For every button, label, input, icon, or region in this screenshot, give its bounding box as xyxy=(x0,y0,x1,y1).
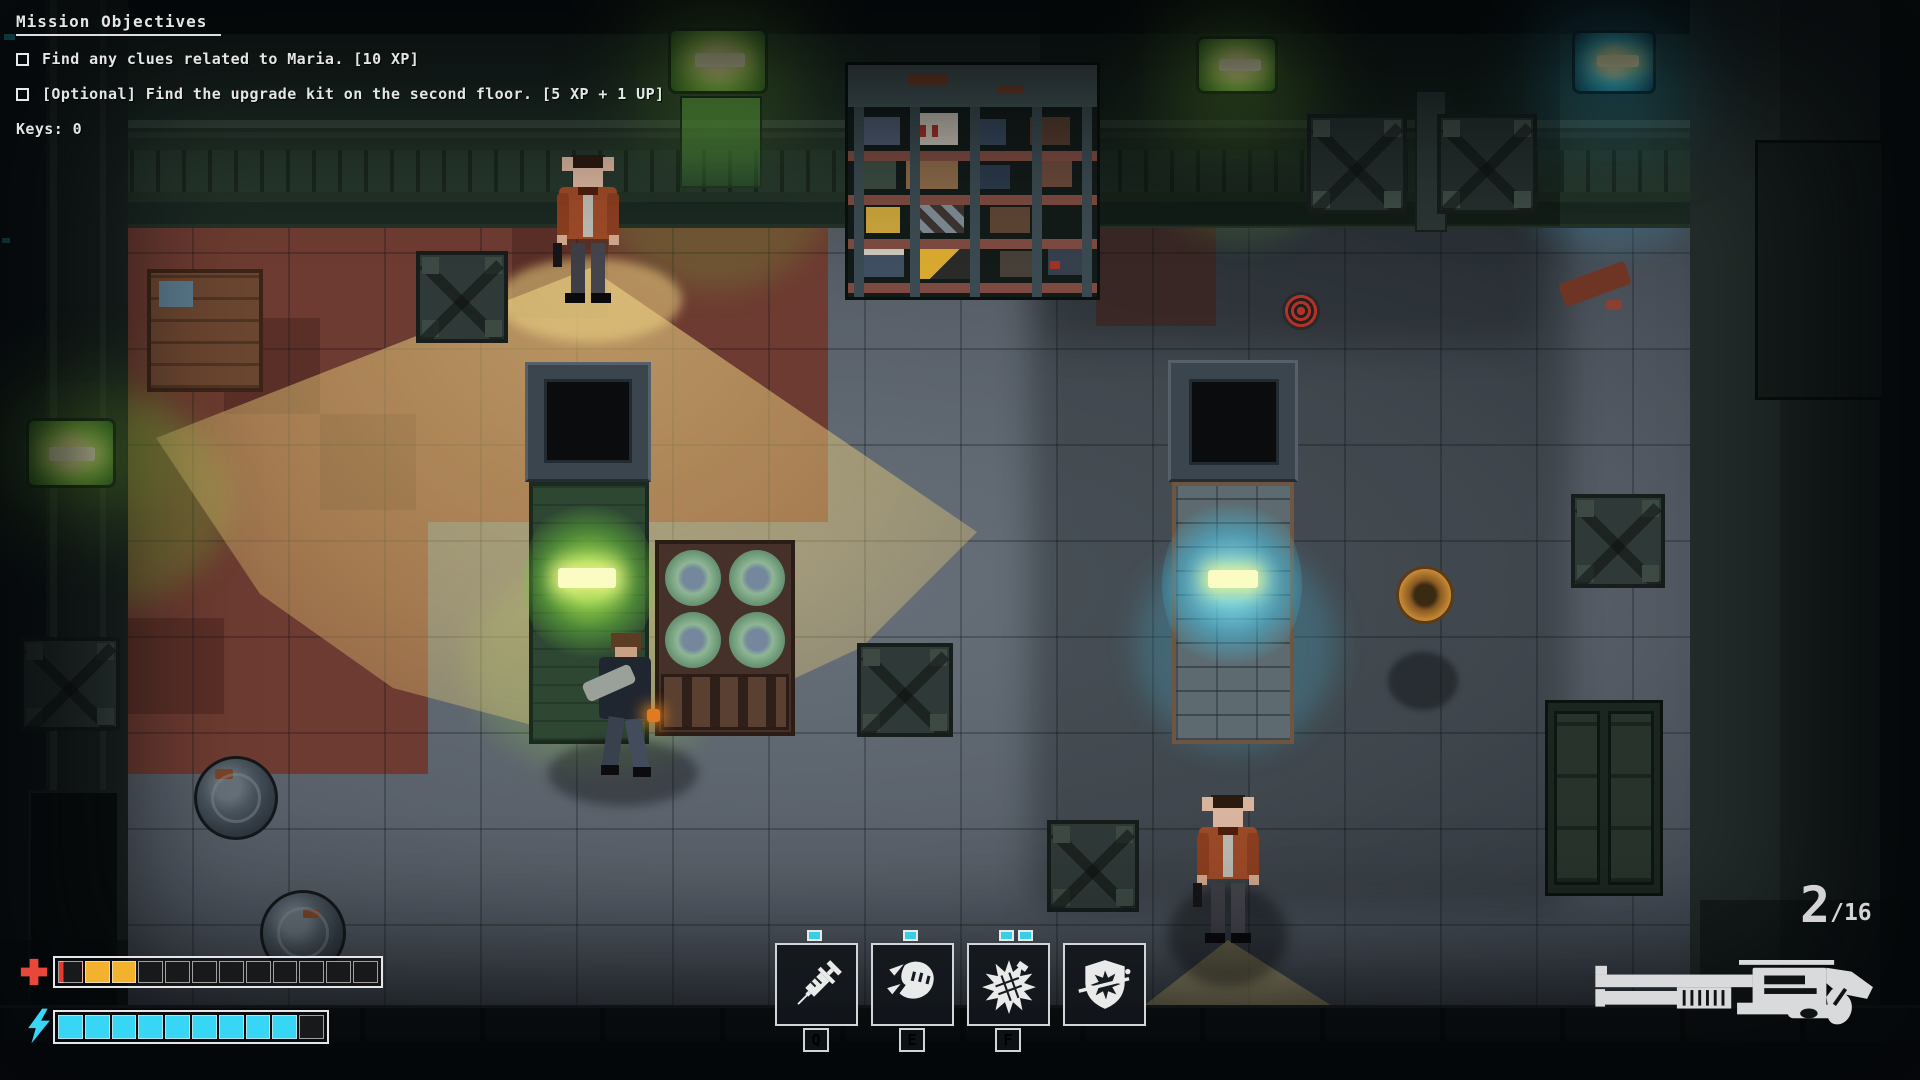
green-lamp xyxy=(668,28,768,94)
enemy-shoe xyxy=(565,293,585,303)
wall-panel xyxy=(1755,140,1885,400)
enemy-hair xyxy=(1243,797,1254,811)
ability-slot-grenade[interactable]: F xyxy=(967,943,1050,1026)
enemy-guard xyxy=(1197,795,1259,950)
player-character xyxy=(585,633,667,781)
seg-empty xyxy=(219,961,244,983)
enemy-hand xyxy=(609,235,619,245)
player-shoe xyxy=(601,765,619,775)
fist-icon xyxy=(884,956,942,1014)
cyan-glint xyxy=(2,238,10,243)
objective-item: [Optional] Find the upgrade kit on the s… xyxy=(16,85,664,103)
health-cross-icon xyxy=(19,957,49,987)
energy-bar xyxy=(53,1010,329,1044)
canister xyxy=(665,612,721,668)
seg-empty xyxy=(246,961,271,983)
eseg-full xyxy=(219,1015,244,1039)
shotgun-icon xyxy=(1590,960,1888,1026)
eseg-full xyxy=(192,1015,217,1039)
gate-panel xyxy=(1554,711,1600,885)
ability-keybind: F xyxy=(995,1028,1021,1052)
metal-crate xyxy=(20,637,120,731)
enemy-guard xyxy=(557,155,619,310)
ability-keybind: Q xyxy=(803,1028,829,1052)
enemy-arm xyxy=(1247,833,1259,877)
canister-crate xyxy=(655,540,795,736)
enemy-leg xyxy=(1211,883,1225,935)
charge-pip xyxy=(1018,930,1033,941)
metal-crate xyxy=(1047,820,1139,912)
shelf-post xyxy=(1082,107,1092,297)
health-segments xyxy=(57,960,379,984)
seg-empty xyxy=(326,961,351,983)
enemy-pistol xyxy=(553,243,562,267)
enemy-arm xyxy=(1197,833,1209,877)
round-stool xyxy=(1396,566,1454,624)
seg-empty xyxy=(273,961,298,983)
gate-door xyxy=(1545,700,1663,896)
metal-crate xyxy=(416,251,508,343)
shelf-item xyxy=(980,165,1010,189)
keys-counter: Keys: 0 xyxy=(16,120,664,138)
floor-hole-shadow xyxy=(1388,652,1458,710)
enemy-shirt xyxy=(1223,835,1233,877)
enemy-collar xyxy=(1218,827,1238,835)
mission-objectives-panel: Mission Objectives Find any clues relate… xyxy=(16,12,664,138)
player-hand-glow xyxy=(647,709,660,722)
green-lamp xyxy=(1196,36,1278,94)
game-viewport[interactable]: Mission Objectives Find any clues relate… xyxy=(0,0,1920,1080)
enemy-leg xyxy=(591,243,605,295)
wooden-pallet xyxy=(147,269,263,392)
seg-empty xyxy=(192,961,217,983)
machine-kiosk xyxy=(1168,360,1298,482)
enemy-hair xyxy=(603,157,614,171)
seg-empty xyxy=(353,961,378,983)
metal-crate xyxy=(1571,494,1665,588)
objective-item: Find any clues related to Maria. [10 XP] xyxy=(16,50,664,68)
eseg-full xyxy=(58,1015,83,1039)
enemy-arm xyxy=(557,193,569,237)
ability-bar: Q E xyxy=(775,943,1146,1026)
enemy-shoe xyxy=(1231,933,1251,943)
eseg-full xyxy=(272,1015,297,1039)
seg-empty xyxy=(138,961,163,983)
ammo-reserve: /16 xyxy=(1830,902,1872,927)
ability-slot-fist[interactable]: E xyxy=(871,943,954,1026)
shelf-item xyxy=(918,247,974,279)
metal-crate xyxy=(857,643,953,737)
syringe-icon xyxy=(788,956,846,1014)
enemy-leg xyxy=(1231,883,1245,935)
eseg-full xyxy=(165,1015,190,1039)
shelf-post xyxy=(910,107,920,297)
metal-crate xyxy=(1437,114,1537,214)
keybind-label: E xyxy=(907,1031,916,1049)
eseg-full xyxy=(112,1015,137,1039)
barrel xyxy=(194,756,278,840)
spiked-grenade-icon xyxy=(980,956,1038,1014)
green-lamp xyxy=(26,418,116,488)
enemy-face xyxy=(1213,808,1243,829)
objective-checkbox xyxy=(16,88,29,101)
charge-pips xyxy=(999,930,1033,941)
rust-patch xyxy=(908,73,948,85)
bottom-machinery-band xyxy=(0,1042,1920,1080)
shelf-post xyxy=(854,107,864,297)
machine-kiosk xyxy=(525,362,651,482)
crosshair-cursor xyxy=(1279,289,1323,333)
enemy-leg xyxy=(571,243,585,295)
charge-pips xyxy=(903,930,918,941)
player-shoe xyxy=(633,767,651,777)
metal-crate xyxy=(1307,114,1407,214)
blood-smear xyxy=(1606,300,1622,310)
seg-partial xyxy=(58,961,83,983)
gate-panel xyxy=(1608,711,1654,885)
enemy-hair xyxy=(562,157,573,171)
shelf-post xyxy=(1032,107,1042,297)
enemy-shoe xyxy=(591,293,611,303)
health-bar xyxy=(53,956,383,988)
crate-slats xyxy=(661,674,789,730)
cyan-lamp xyxy=(1572,30,1656,94)
shelf-item-detail xyxy=(932,125,938,137)
enemy-collar xyxy=(578,187,598,195)
shield-parry-icon xyxy=(1076,956,1134,1014)
objective-text: [Optional] Find the upgrade kit on the s… xyxy=(42,85,664,103)
machine-brick-panel xyxy=(1172,482,1294,744)
enemy-hair xyxy=(1202,797,1213,811)
eseg-empty xyxy=(299,1015,324,1039)
shelf-item xyxy=(862,161,896,189)
shelf-post xyxy=(970,107,980,297)
pallet-box xyxy=(159,281,193,307)
shelf-top xyxy=(848,65,1097,107)
enemy-hand xyxy=(1249,875,1259,885)
cyan-glint xyxy=(4,34,15,40)
seg-empty xyxy=(299,961,324,983)
ammo-counter: 2 /16 xyxy=(1800,884,1872,927)
shelf-item-detail xyxy=(920,125,926,137)
keybind-label: F xyxy=(1003,1031,1012,1049)
green-sign-banner xyxy=(680,96,762,188)
shelf-item xyxy=(864,117,900,145)
enemy-face xyxy=(573,168,603,189)
canister xyxy=(665,550,721,606)
charge-pip xyxy=(807,930,822,941)
shelf-item-detail xyxy=(1050,261,1060,269)
ability-keybind: E xyxy=(899,1028,925,1052)
shelf-item xyxy=(866,207,900,233)
ammo-current: 2 xyxy=(1800,884,1830,927)
charge-pip xyxy=(999,930,1014,941)
ability-slot-syringe[interactable]: Q xyxy=(775,943,858,1026)
shelf-item xyxy=(860,249,904,277)
charge-pips xyxy=(807,930,822,941)
shelf-unit xyxy=(845,62,1100,300)
shelf-item xyxy=(1038,161,1072,187)
enemy-pistol xyxy=(1193,883,1202,907)
objective-text: Find any clues related to Maria. [10 XP] xyxy=(42,50,419,68)
seg-full xyxy=(85,961,110,983)
shelf-item xyxy=(990,207,1030,233)
charge-pip xyxy=(903,930,918,941)
eseg-full xyxy=(138,1015,163,1039)
eseg-full xyxy=(246,1015,271,1039)
energy-segments xyxy=(57,1014,325,1040)
enemy-arm xyxy=(607,193,619,237)
seg-empty xyxy=(165,961,190,983)
canister xyxy=(729,550,785,606)
rust-patch xyxy=(998,85,1024,94)
keybind-label: Q xyxy=(811,1031,820,1049)
seg-full xyxy=(112,961,137,983)
player-leg xyxy=(601,716,624,770)
objective-checkbox xyxy=(16,53,29,66)
energy-bolt-icon xyxy=(26,1008,52,1044)
ability-slot-shield[interactable] xyxy=(1063,943,1146,1026)
eseg-full xyxy=(85,1015,110,1039)
player-leg xyxy=(625,718,649,770)
enemy-shoe xyxy=(1205,933,1225,943)
canister xyxy=(729,612,785,668)
mission-objectives-title: Mission Objectives xyxy=(16,12,221,36)
enemy-shirt xyxy=(583,195,593,237)
